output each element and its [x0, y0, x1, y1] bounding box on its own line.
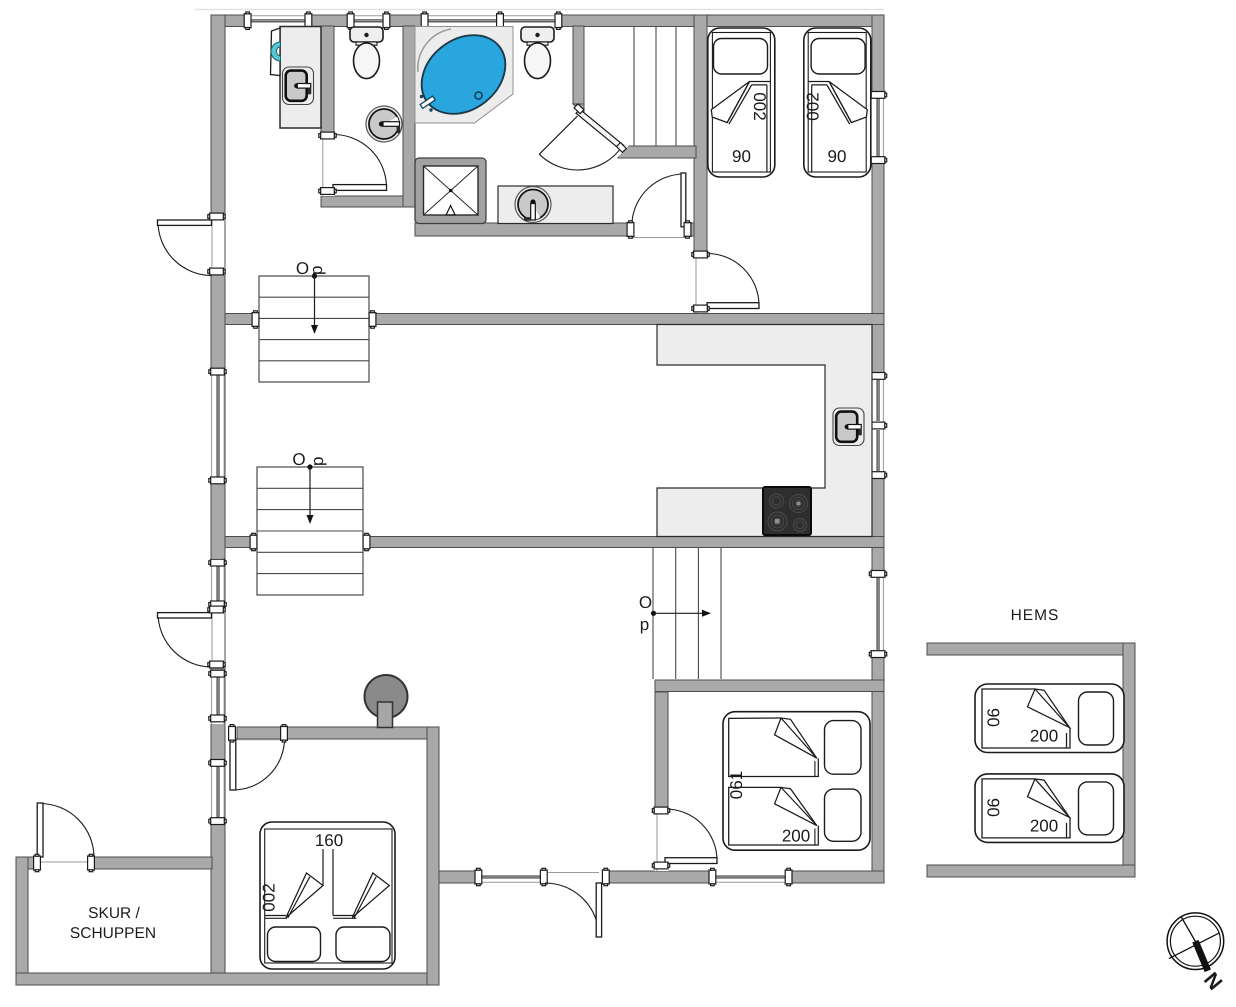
svg-text:160: 160	[315, 831, 343, 850]
svg-text:002: 002	[260, 883, 279, 911]
svg-text:200: 200	[782, 827, 810, 846]
svg-text:p: p	[640, 615, 649, 634]
svg-text:O: O	[292, 450, 305, 469]
svg-text:SKUR /: SKUR /	[88, 905, 140, 922]
svg-text:90: 90	[732, 147, 751, 166]
svg-text:HEMS: HEMS	[1011, 607, 1060, 624]
svg-text:200: 200	[1030, 817, 1058, 836]
svg-text:90: 90	[984, 798, 1003, 817]
svg-text:SCHUPPEN: SCHUPPEN	[70, 925, 156, 942]
svg-text:O: O	[639, 593, 652, 612]
svg-text:200: 200	[1030, 727, 1058, 746]
svg-text:p: p	[307, 266, 326, 275]
svg-text:002: 002	[804, 92, 823, 120]
svg-text:90: 90	[828, 147, 847, 166]
svg-text:90: 90	[984, 708, 1003, 727]
svg-text:002: 002	[750, 92, 769, 120]
svg-text:p: p	[308, 457, 327, 466]
svg-text:061: 061	[727, 771, 746, 799]
